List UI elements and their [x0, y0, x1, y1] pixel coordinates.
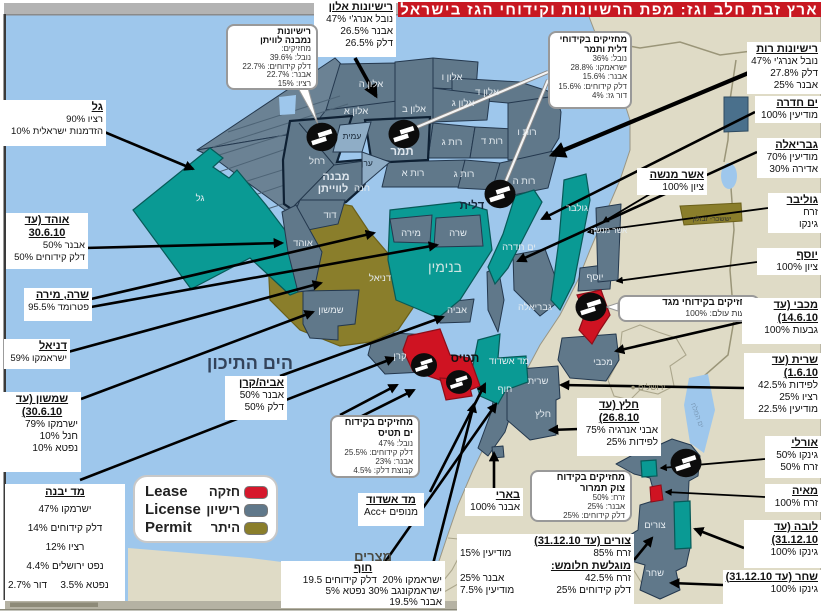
svg-text:צורים: צורים	[644, 520, 665, 531]
svg-text:ערן: ערן	[361, 158, 373, 168]
svg-text:אלון ג: אלון ג	[452, 97, 474, 109]
svg-text:דוד: דוד	[324, 210, 337, 221]
svg-text:יששכר- זבולון: יששכר- זבולון	[692, 215, 731, 223]
svg-text:לווייתן: לווייתן	[318, 182, 349, 195]
svg-text:תמר: תמר	[390, 146, 413, 158]
svg-text:אלון ב: אלון ב	[402, 103, 426, 115]
svg-text:קרן: קרן	[393, 351, 407, 362]
svg-text:רות ג: רות ג	[442, 137, 463, 148]
svg-text:מכבי: מכבי	[593, 357, 613, 368]
svg-text:אשר מנשה: אשר מנשה	[591, 226, 628, 235]
svg-text:עמית: עמית	[343, 131, 362, 141]
svg-text:דלית: דלית	[460, 199, 485, 212]
svg-text:רחל: רחל	[309, 155, 325, 167]
svg-text:ארץ זבת חלב וגז: מפת הרשיונות: ארץ זבת חלב וגז: מפת הרשיונות וקידוחי הג…	[400, 2, 818, 19]
svg-text:גולבר: גולבר	[566, 202, 588, 214]
svg-text:אלון א: אלון א	[344, 105, 368, 117]
svg-text:דניאל: דניאל	[369, 272, 391, 284]
svg-text:רות ג: רות ג	[454, 169, 475, 180]
svg-text:רות ו: רות ו	[517, 127, 536, 138]
svg-text:מבנה: מבנה	[322, 171, 349, 183]
svg-text:רות ה: רות ה	[513, 176, 536, 187]
svg-text:שחר: שחר	[646, 568, 664, 579]
svg-text:גבריאלה: גבריאלה	[518, 301, 552, 313]
svg-text:הים התיכון: הים התיכון	[207, 353, 293, 373]
svg-text:אלון ה: אלון ה	[359, 78, 383, 90]
svg-text:תטיס: תטיס	[451, 351, 480, 365]
svg-text:שמשון: שמשון	[318, 305, 343, 316]
svg-text:שרה: שרה	[449, 228, 467, 239]
svg-text:אביה: אביה	[447, 305, 467, 316]
svg-text:חנה: חנה	[354, 183, 370, 194]
svg-text:רות א: רות א	[402, 168, 425, 179]
svg-text:מד אשדוד: מד אשדוד	[489, 356, 529, 367]
svg-text:מירה: מירה	[401, 228, 421, 239]
svg-text:שרית: שרית	[528, 376, 549, 387]
svg-text:אלון ד: אלון ד	[475, 86, 499, 98]
svg-text:רות ד: רות ד	[481, 136, 503, 147]
svg-text:חוף: חוף	[498, 384, 513, 395]
svg-text:חלץ: חלץ	[535, 408, 551, 420]
svg-text:אוהד: אוהד	[293, 238, 313, 249]
svg-text:ים חדרה: ים חדרה	[502, 242, 536, 253]
svg-text:אלון ו: אלון ו	[442, 71, 463, 83]
svg-text:בנימין: בנימין	[428, 259, 462, 275]
svg-text:ירושלים ●: ירושלים ●	[631, 382, 666, 392]
svg-text:גל: גל	[196, 192, 205, 204]
svg-text:יוסף: יוסף	[587, 272, 604, 283]
